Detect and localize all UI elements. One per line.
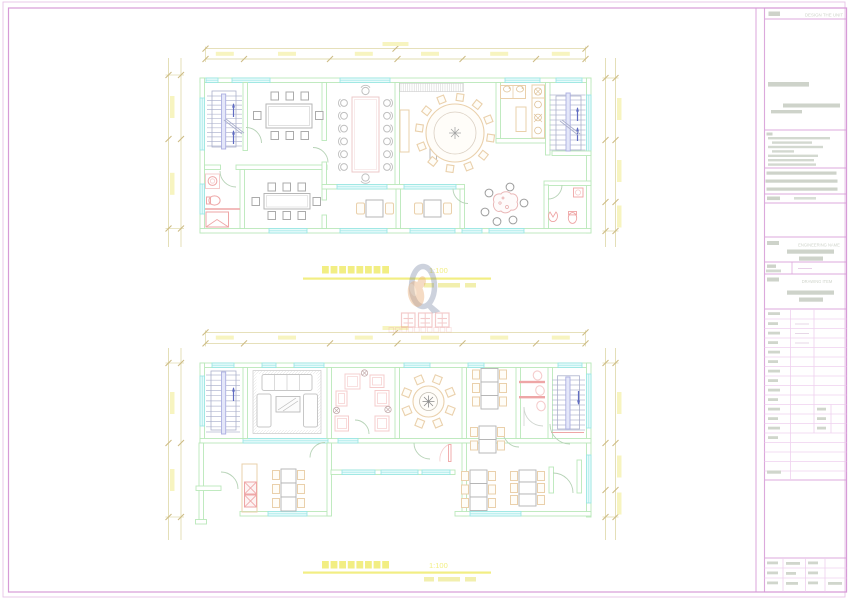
svg-text:DRAWING ITEM: DRAWING ITEM bbox=[802, 279, 833, 284]
svg-text:ENGINEERING NAME: ENGINEERING NAME bbox=[798, 243, 840, 248]
svg-text:DESIGN THE UNIT: DESIGN THE UNIT bbox=[805, 13, 844, 18]
svg-text:1:100: 1:100 bbox=[429, 561, 448, 570]
